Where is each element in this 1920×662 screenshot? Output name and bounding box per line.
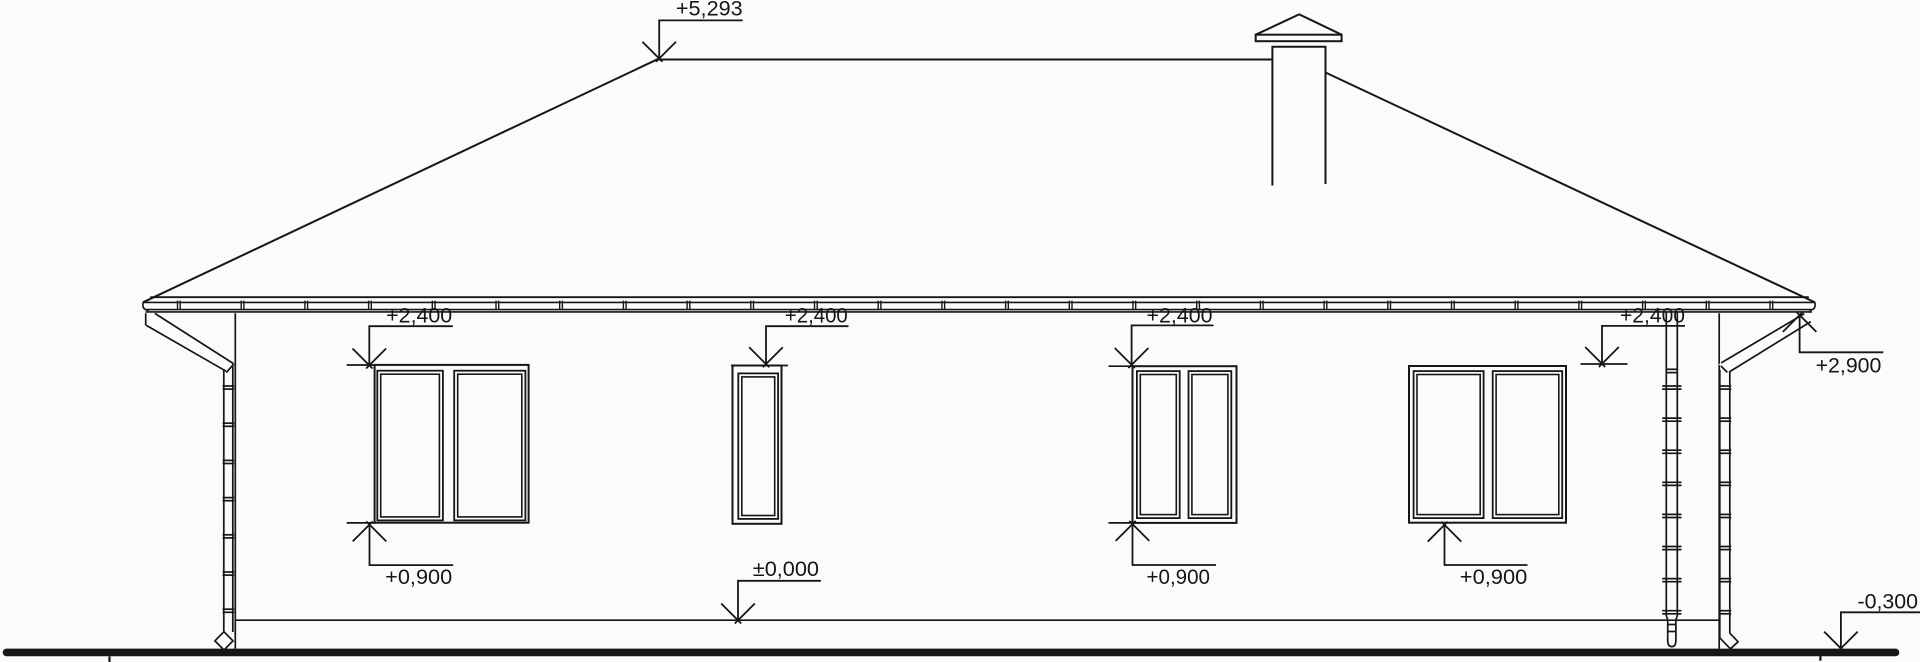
svg-text:+2,400: +2,400 (386, 304, 452, 327)
svg-text:+2,400: +2,400 (1620, 305, 1685, 328)
svg-text:+0,900: +0,900 (1460, 566, 1528, 589)
svg-text:-0,300: -0,300 (1858, 590, 1919, 613)
svg-text:±0,000: ±0,000 (753, 558, 819, 581)
svg-text:+5,293: +5,293 (676, 0, 743, 20)
svg-text:+2,400: +2,400 (1147, 304, 1213, 327)
svg-text:+2,900: +2,900 (1816, 355, 1882, 378)
svg-text:+0,900: +0,900 (1147, 566, 1211, 589)
svg-text:+2,400: +2,400 (785, 304, 848, 327)
svg-text:+0,900: +0,900 (385, 566, 452, 589)
